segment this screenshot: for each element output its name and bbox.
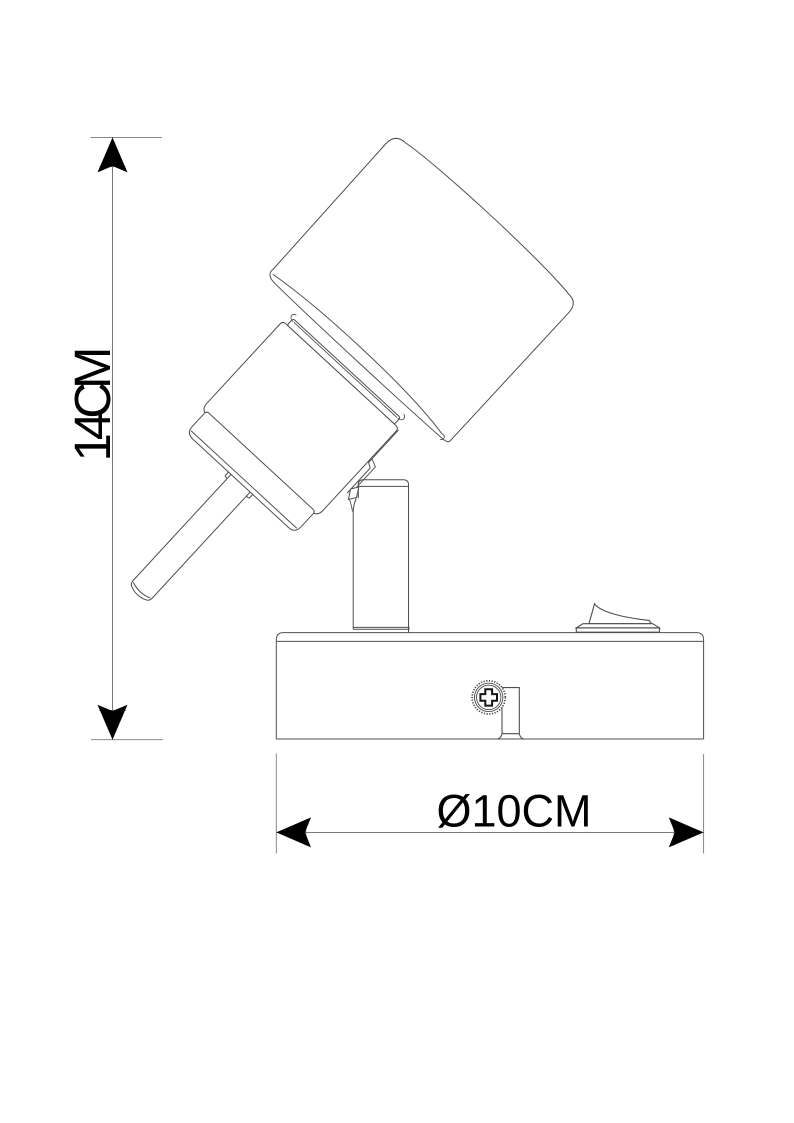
svg-text:Ø10CM: Ø10CM xyxy=(436,786,591,837)
svg-text:14CM: 14CM xyxy=(64,350,121,462)
